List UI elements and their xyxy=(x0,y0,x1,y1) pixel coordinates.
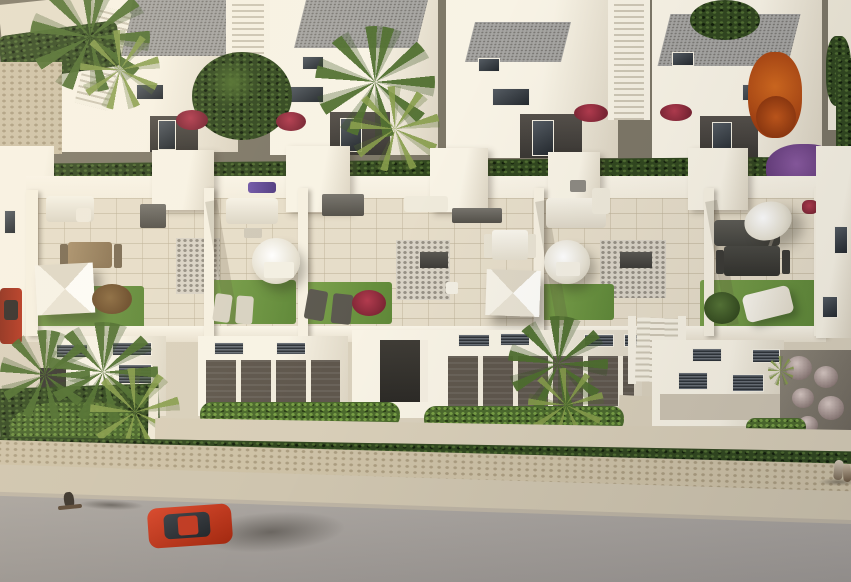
scene xyxy=(0,0,851,582)
light-overlay xyxy=(0,0,851,582)
